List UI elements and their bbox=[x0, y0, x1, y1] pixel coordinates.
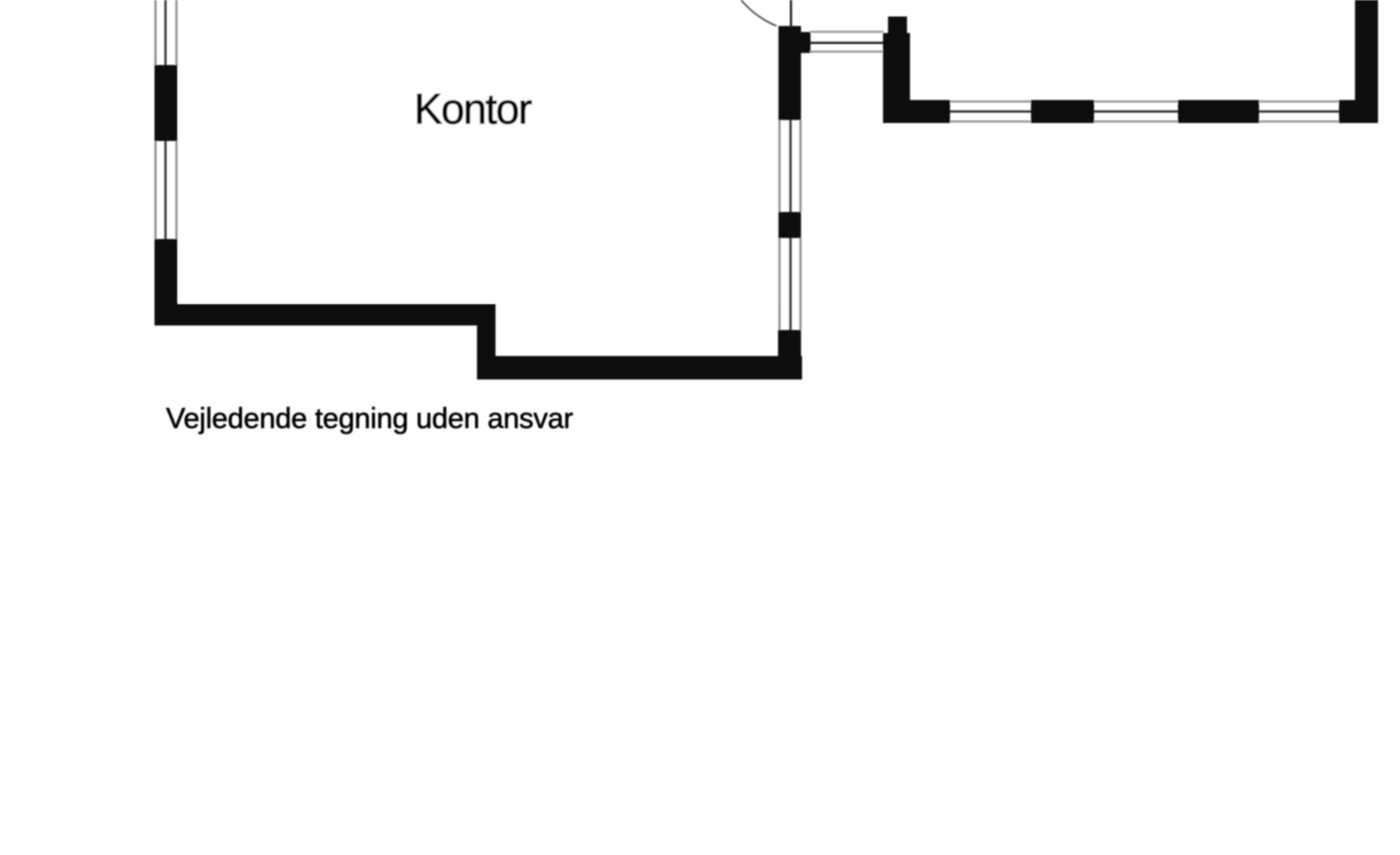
svg-text:Kontor: Kontor bbox=[414, 87, 532, 134]
svg-text:Vejledende tegning uden ansvar: Vejledende tegning uden ansvar bbox=[166, 403, 573, 435]
